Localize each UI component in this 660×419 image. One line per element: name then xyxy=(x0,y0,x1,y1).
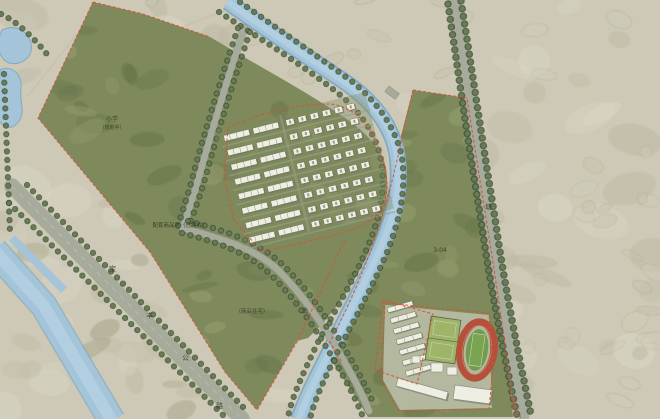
gym-block xyxy=(431,363,443,372)
label-wide-road-char2: 丰 xyxy=(146,311,153,320)
small-block xyxy=(412,356,420,363)
site-plan-map: 小学 （规划中） 配套商品房（已建成） 3-04 （商品住宅） 宝 丰 公 路 … xyxy=(0,0,660,419)
school-campus xyxy=(383,301,498,410)
label-school-parcel-line1: 小学 xyxy=(106,115,118,123)
label-east-road-char: 塘 xyxy=(485,202,492,211)
site-plan-canvas: 小学 （规划中） 配套商品房（已建成） 3-04 （商品住宅） 宝 丰 公 路 … xyxy=(0,0,660,419)
label-school-road-char: 南 xyxy=(302,307,308,315)
label-wide-road-char3: 公 xyxy=(182,354,189,362)
label-wide-road-char4: 路 xyxy=(216,401,223,410)
label-school-parcel-line2: （规划中） xyxy=(99,124,124,131)
label-wide-road-char1: 宝 xyxy=(109,264,116,273)
label-housing-parcel: 配套商品房（已建成） xyxy=(152,221,207,229)
label-commodity-housing: （商品住宅） xyxy=(235,307,268,315)
annex-block xyxy=(447,367,457,375)
label-parcel-code: 3-04 xyxy=(433,247,447,254)
